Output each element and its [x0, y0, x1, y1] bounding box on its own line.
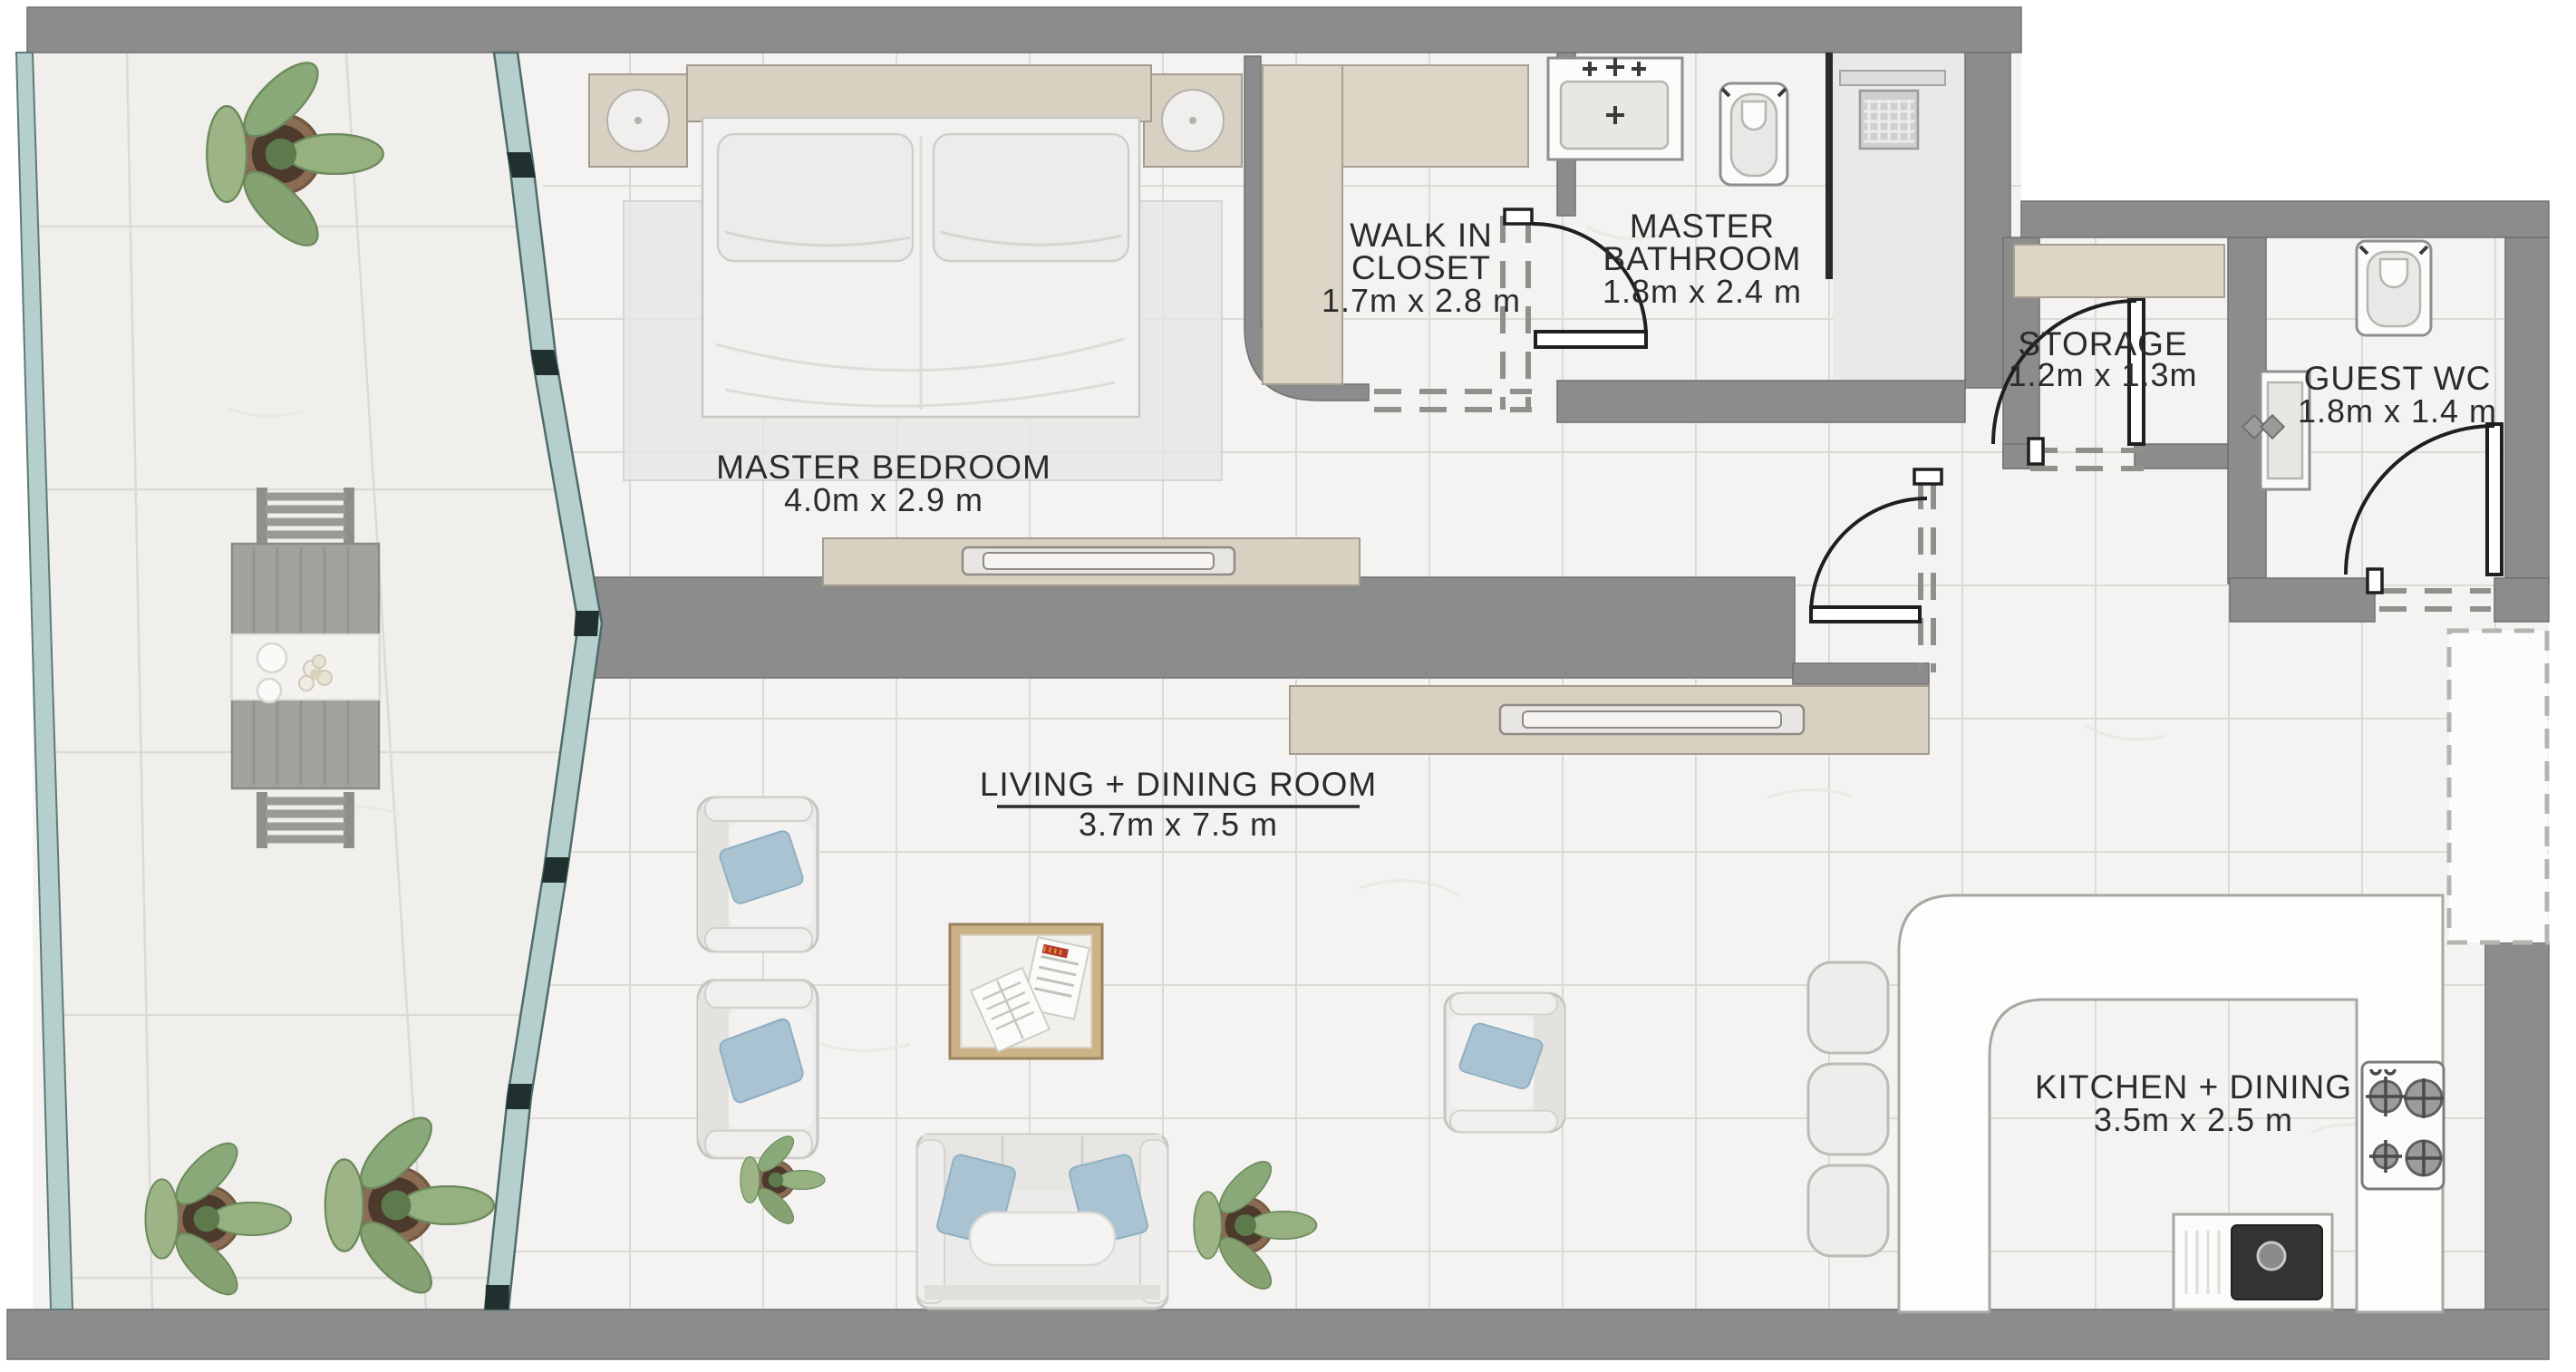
label-master-bathroom-dims: 1.8m x 2.4 m [1603, 273, 1802, 310]
sofa [917, 1135, 1167, 1309]
plate [257, 643, 286, 672]
wardrobe-vertical [1263, 65, 1342, 384]
lamp-center [1189, 117, 1196, 124]
door-jamb [1914, 469, 1942, 484]
wall-bathroom-bottom [1557, 381, 1965, 422]
label-master-bedroom: MASTER BEDROOM [716, 449, 1051, 486]
wall-storage-bottom-right-stub [2135, 444, 2228, 469]
armchair-armrest [705, 928, 812, 952]
door-jamb [2029, 439, 2043, 464]
label-guest-wc-dims: 1.8m x 1.4 m [2298, 392, 2497, 430]
lamp-center [634, 117, 642, 124]
label-living-dining-dims: 3.7m x 7.5 m [1079, 806, 1278, 843]
wardrobe-horizontal [1342, 65, 1528, 167]
wall-bedroom-living-divider [580, 577, 1795, 678]
mullion-icon [542, 857, 569, 883]
label-walk-in-closet-line1: WALK IN [1350, 217, 1493, 254]
armchair-armrest [705, 981, 812, 1008]
wall-topright-top [2021, 201, 2549, 237]
storage-shelf [2014, 245, 2224, 297]
shower-glass-divider [1825, 53, 1833, 279]
door-leaf [1811, 607, 1920, 622]
bar-stool [1808, 962, 1888, 1053]
armchair-back [698, 803, 729, 946]
wall-far-right [2505, 237, 2549, 584]
label-kitchen-dining-dims: 3.5m x 2.5 m [2094, 1101, 2293, 1138]
door-jamb [2368, 569, 2382, 593]
ac-ledge-dashed-box [2449, 631, 2547, 942]
armchair [1445, 993, 1564, 1132]
furniture-living-console [1290, 686, 1929, 754]
door-leaf [2487, 424, 2502, 575]
label-kitchen-dining: KITCHEN + DINING [2035, 1068, 2352, 1106]
armchair-armrest [705, 1131, 812, 1158]
label-storage-dims: 1.2m x 1.3m [2008, 356, 2197, 393]
coffee-table [950, 924, 1102, 1058]
wall-bottom [7, 1309, 2549, 1359]
wall-guestwc-bottom-right [2494, 578, 2549, 622]
toilet-flush [2380, 259, 2407, 287]
sofa-base-strip [925, 1285, 1160, 1300]
armchair-armrest [1450, 993, 1557, 1014]
label-master-bathroom-line2: BATHROOM [1603, 240, 1801, 277]
armchair [698, 981, 818, 1158]
label-walk-in-closet-dims: 1.7m x 2.8 m [1322, 282, 1521, 319]
sofa-bolster [970, 1213, 1115, 1265]
wall-guestwc-bottom-left [2230, 578, 2375, 622]
mullion-icon [485, 1285, 509, 1309]
toilet-flush [1742, 101, 1766, 130]
plate [257, 679, 281, 702]
label-living-dining: LIVING + DINING ROOM [980, 766, 1377, 803]
shower-arm [1840, 71, 1945, 85]
label-master-bathroom-line1: MASTER [1630, 208, 1775, 245]
label-guest-wc: GUEST WC [2304, 360, 2492, 397]
tv-screen [983, 553, 1214, 569]
armchair-armrest [1450, 1111, 1557, 1132]
tv-screen [1523, 711, 1781, 728]
armchair-back [698, 987, 729, 1152]
mullion-icon [506, 1084, 532, 1109]
floor-plan: MASTER BEDROOM 4.0m x 2.9 m WALK IN CLOS… [0, 0, 2576, 1372]
armchair [698, 797, 818, 952]
exterior-top-right [2021, 7, 2576, 201]
wall-hall-thin [1793, 663, 1929, 684]
balcony-table [232, 544, 379, 788]
armchair-back [1534, 998, 1564, 1126]
door-jamb [1505, 209, 1532, 224]
bar-stool [1808, 1165, 1888, 1256]
bed-headboard [687, 65, 1151, 121]
wall-top [27, 7, 2021, 53]
mullion-icon [574, 611, 599, 636]
label-walk-in-closet-line2: CLOSET [1351, 249, 1491, 286]
door-leaf [1535, 332, 1646, 347]
flower-center [310, 669, 321, 680]
wall-kitchen-right [2485, 942, 2549, 1309]
label-master-bedroom-dims: 4.0m x 2.9 m [784, 481, 983, 518]
exterior-right [2549, 7, 2576, 1372]
bar-stool [1808, 1064, 1888, 1155]
armchair-armrest [705, 797, 812, 821]
bed-pillow-right [934, 134, 1128, 261]
kitchen-faucet-icon [2258, 1242, 2285, 1270]
